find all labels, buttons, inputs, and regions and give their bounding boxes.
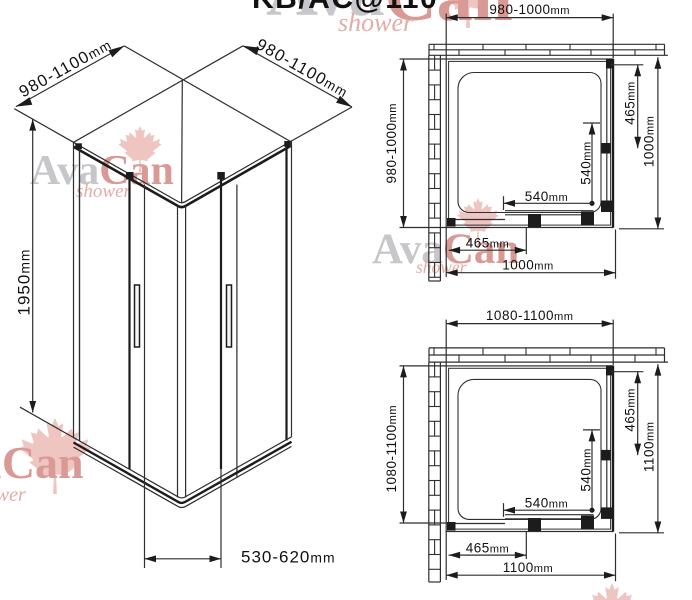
svg-text:465mm: 465mm — [466, 236, 510, 251]
svg-text:shower: shower — [416, 257, 467, 277]
svg-text:shower: shower — [76, 181, 132, 202]
svg-text:AvaCan: AvaCan — [0, 437, 84, 488]
svg-text:540mm: 540mm — [525, 189, 569, 204]
svg-text:540mm: 540mm — [525, 496, 569, 511]
svg-text:1000mm: 1000mm — [642, 116, 657, 168]
svg-text:530-620mm: 530-620mm — [241, 548, 336, 567]
svg-text:1100mm: 1100mm — [503, 560, 554, 575]
svg-text:KB/AC@110: KB/AC@110 — [252, 0, 438, 15]
svg-text:980-1000mm: 980-1000mm — [489, 2, 570, 17]
svg-text:1080-1100mm: 1080-1100mm — [384, 405, 399, 493]
svg-text:540mm: 540mm — [579, 141, 594, 185]
svg-text:1000mm: 1000mm — [502, 258, 554, 273]
svg-text:shower: shower — [0, 484, 26, 506]
svg-text:465mm: 465mm — [623, 81, 638, 125]
svg-text:465mm: 465mm — [466, 541, 510, 556]
svg-text:980-1000mm: 980-1000mm — [384, 103, 399, 184]
svg-text:1950mm: 1950mm — [15, 249, 34, 316]
svg-text:1080-1100mm: 1080-1100mm — [486, 308, 574, 323]
svg-text:465mm: 465mm — [623, 388, 638, 432]
svg-text:1100mm: 1100mm — [642, 422, 657, 473]
svg-text:540mm: 540mm — [579, 448, 594, 492]
